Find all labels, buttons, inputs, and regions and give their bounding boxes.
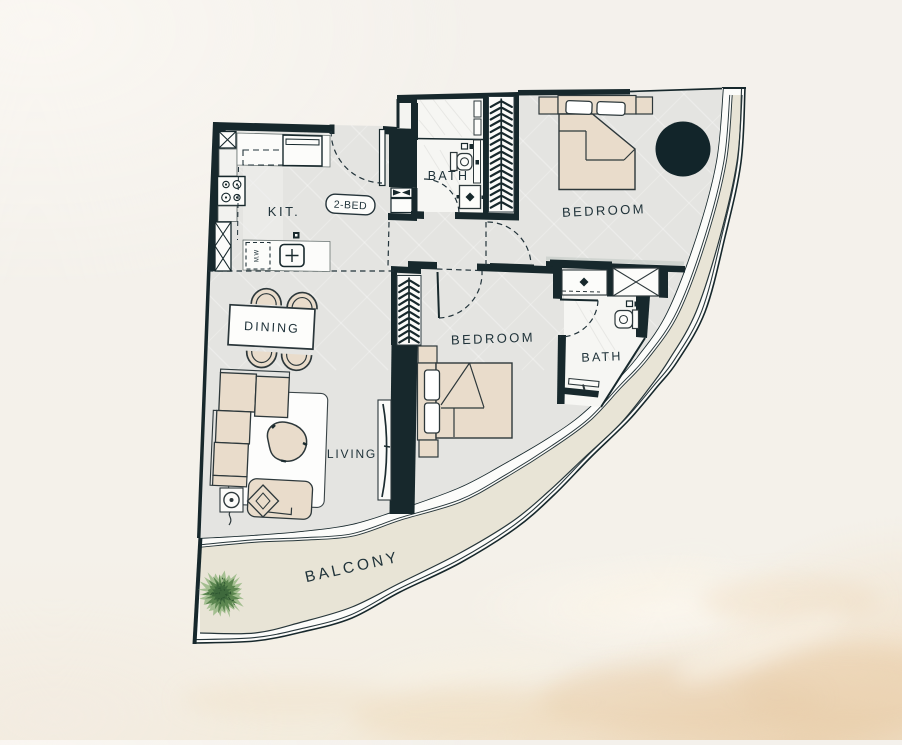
- svg-text:M.W: M.W: [255, 249, 261, 262]
- svg-text:DINING: DINING: [244, 319, 300, 336]
- svg-text:KIT.: KIT.: [268, 204, 300, 219]
- svg-text:LIVING: LIVING: [327, 447, 377, 461]
- svg-text:2-BED: 2-BED: [333, 199, 367, 213]
- svg-text:BATH: BATH: [581, 349, 623, 364]
- svg-text:BATH: BATH: [428, 169, 470, 183]
- svg-text:BEDROOM: BEDROOM: [451, 330, 535, 348]
